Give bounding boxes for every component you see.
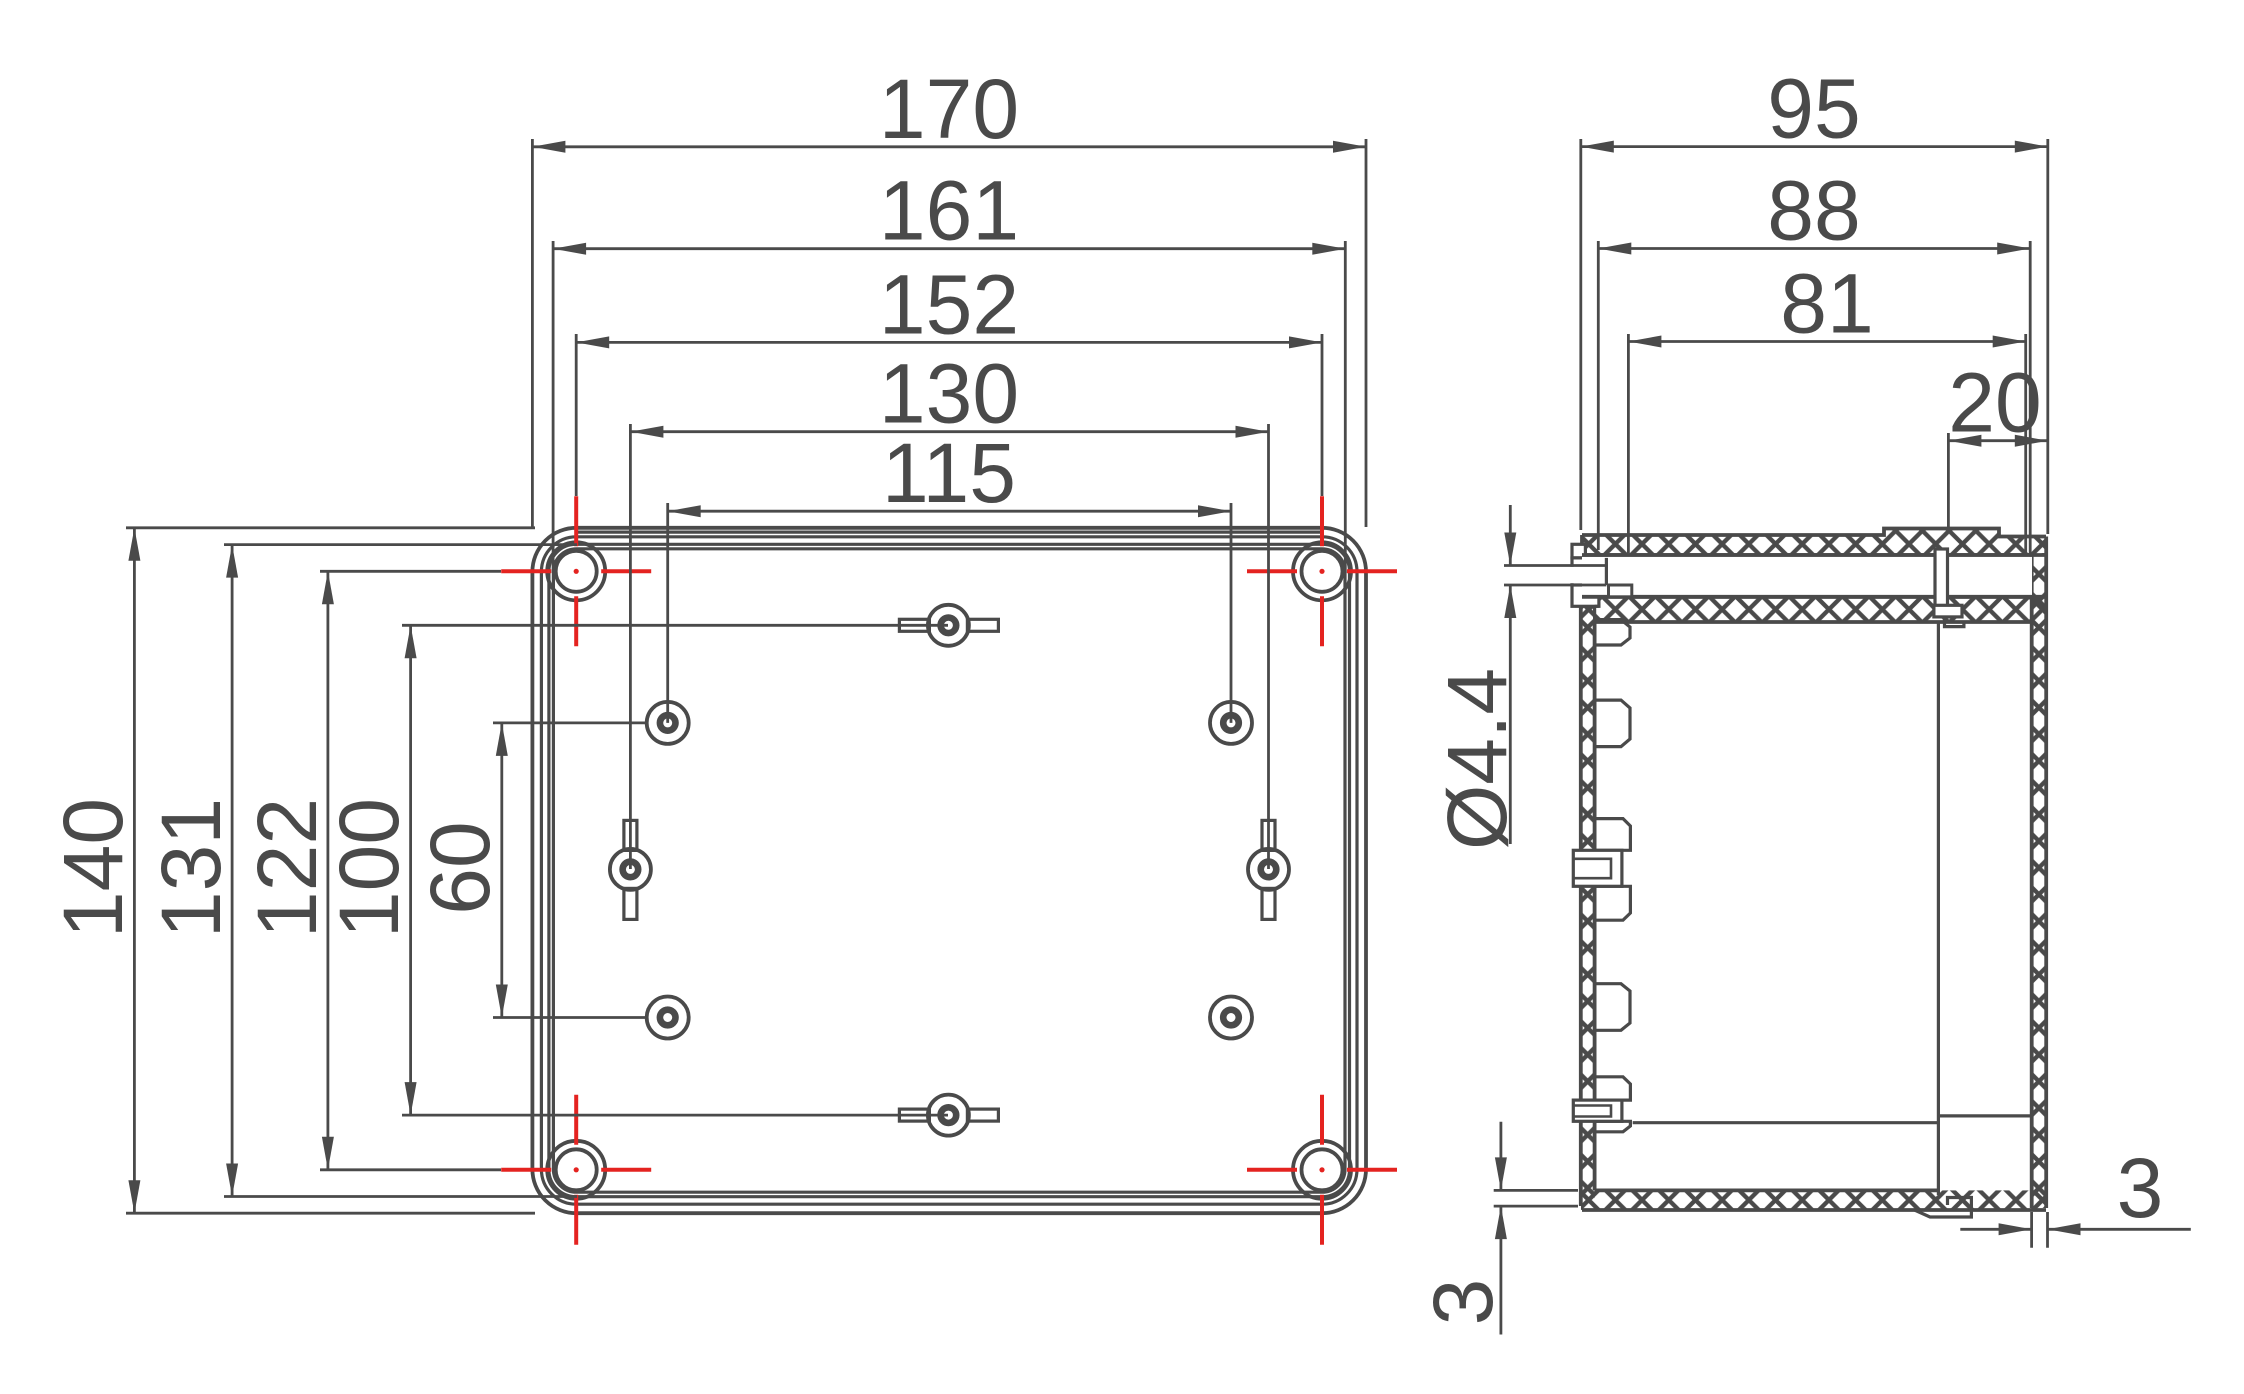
svg-text:3: 3: [2117, 1141, 2164, 1235]
svg-text:100: 100: [322, 798, 416, 938]
svg-text:152: 152: [879, 257, 1019, 351]
svg-text:95: 95: [1767, 62, 1860, 156]
svg-text:20: 20: [1948, 356, 2041, 450]
svg-text:115: 115: [882, 426, 1016, 520]
svg-text:122: 122: [240, 798, 334, 938]
svg-text:3: 3: [1416, 1279, 1510, 1326]
svg-text:131: 131: [144, 798, 238, 938]
svg-text:170: 170: [879, 62, 1019, 156]
svg-text:140: 140: [46, 798, 140, 938]
svg-text:161: 161: [879, 164, 1019, 258]
svg-text:88: 88: [1767, 164, 1860, 258]
svg-text:81: 81: [1780, 257, 1873, 351]
svg-text:60: 60: [413, 821, 507, 914]
svg-text:Ø4.4: Ø4.4: [1430, 668, 1524, 850]
